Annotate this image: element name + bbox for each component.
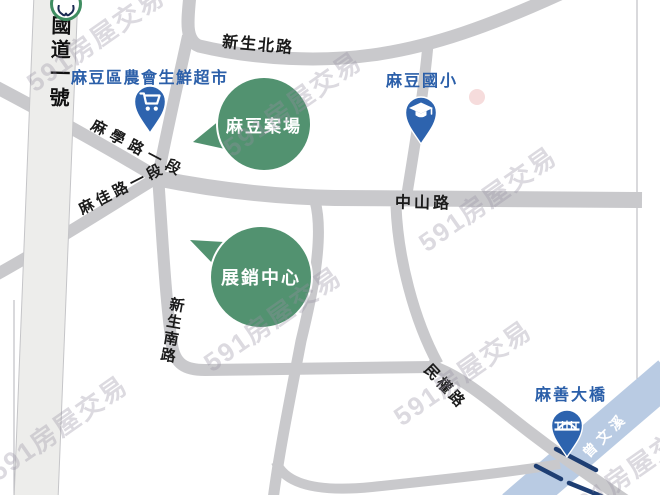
shopping-cart-icon	[131, 84, 169, 134]
poi-label-school: 麻豆國小	[386, 74, 458, 90]
graduation-cap-icon	[402, 95, 440, 145]
road-label-national-highway: 國道一號	[47, 15, 70, 111]
bubble-site: 麻豆案場	[218, 78, 310, 170]
map-canvas: 新生北路 麻學路一段 麻佳路一段 中山路 新生南路 民權路 國道一號 曾文溪 麻…	[0, 0, 660, 495]
road-curve-southeast	[396, 206, 438, 364]
bubble-sales-center: 展銷中心	[211, 227, 311, 327]
road-label-zhongshan: 中山路	[395, 196, 452, 213]
faint-dot	[469, 89, 485, 105]
poi-label-bridge: 麻善大橋	[535, 388, 607, 404]
poi-label-supermarket: 麻豆區農會生鮮超市	[71, 71, 229, 87]
bridge-icon	[548, 408, 586, 458]
